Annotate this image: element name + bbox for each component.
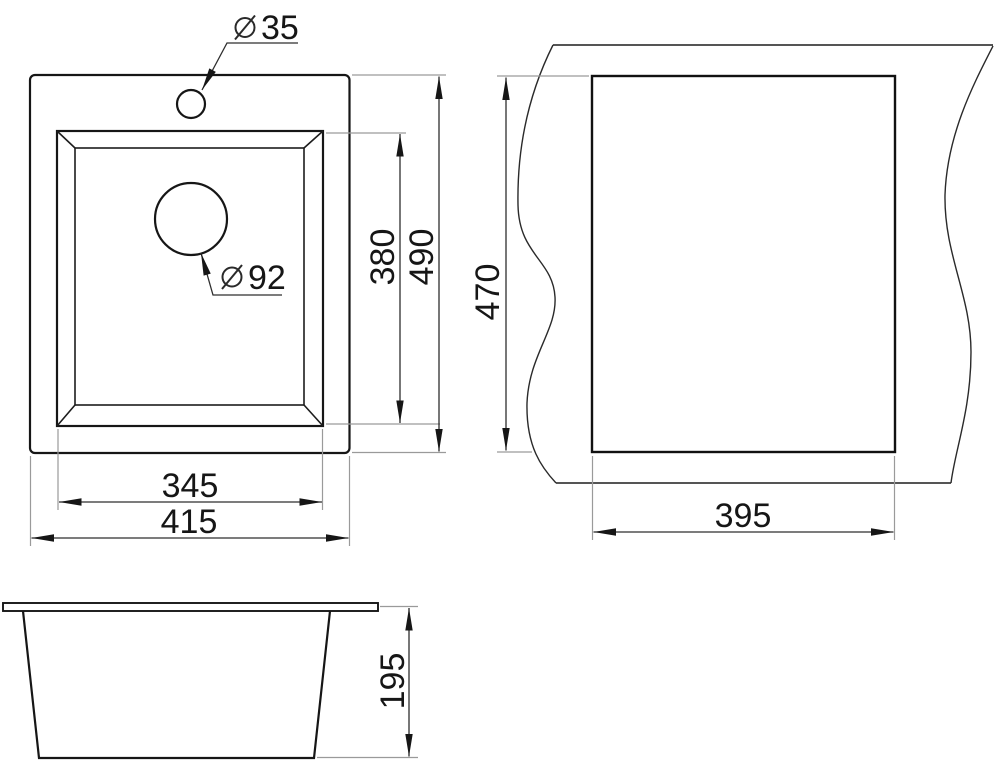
sink-technical-drawing: 35 92 380 490 345 415 [0, 0, 1000, 766]
cutout-width-label: 395 [715, 497, 772, 535]
rim-profile [3, 603, 378, 611]
drain-diameter-label: 92 [248, 259, 286, 297]
side-view: 195 [3, 603, 418, 758]
top-view: 35 92 380 490 345 415 [30, 9, 446, 546]
bowl-width-label: 345 [162, 467, 219, 505]
faucet-diameter-symbol [235, 16, 255, 40]
countertop-break-line-right [945, 46, 993, 483]
faucet-leader-line [202, 43, 298, 90]
overall-depth-label: 490 [403, 229, 441, 286]
cutout-outline [592, 76, 895, 452]
drawing-canvas: 35 92 380 490 345 415 [0, 0, 1000, 766]
drain-hole [155, 183, 227, 255]
bowl-depth-label: 380 [364, 229, 402, 286]
countertop-break-line-left [518, 45, 556, 483]
cutout-depth-label: 470 [469, 264, 507, 321]
cutout-view: 470 395 [469, 45, 993, 540]
faucet-hole [177, 90, 205, 118]
faucet-diameter-label: 35 [261, 9, 299, 47]
bowl-profile [23, 611, 330, 758]
overall-width-label: 415 [161, 503, 218, 541]
height-label: 195 [374, 653, 412, 710]
drain-diameter-symbol [222, 265, 242, 289]
